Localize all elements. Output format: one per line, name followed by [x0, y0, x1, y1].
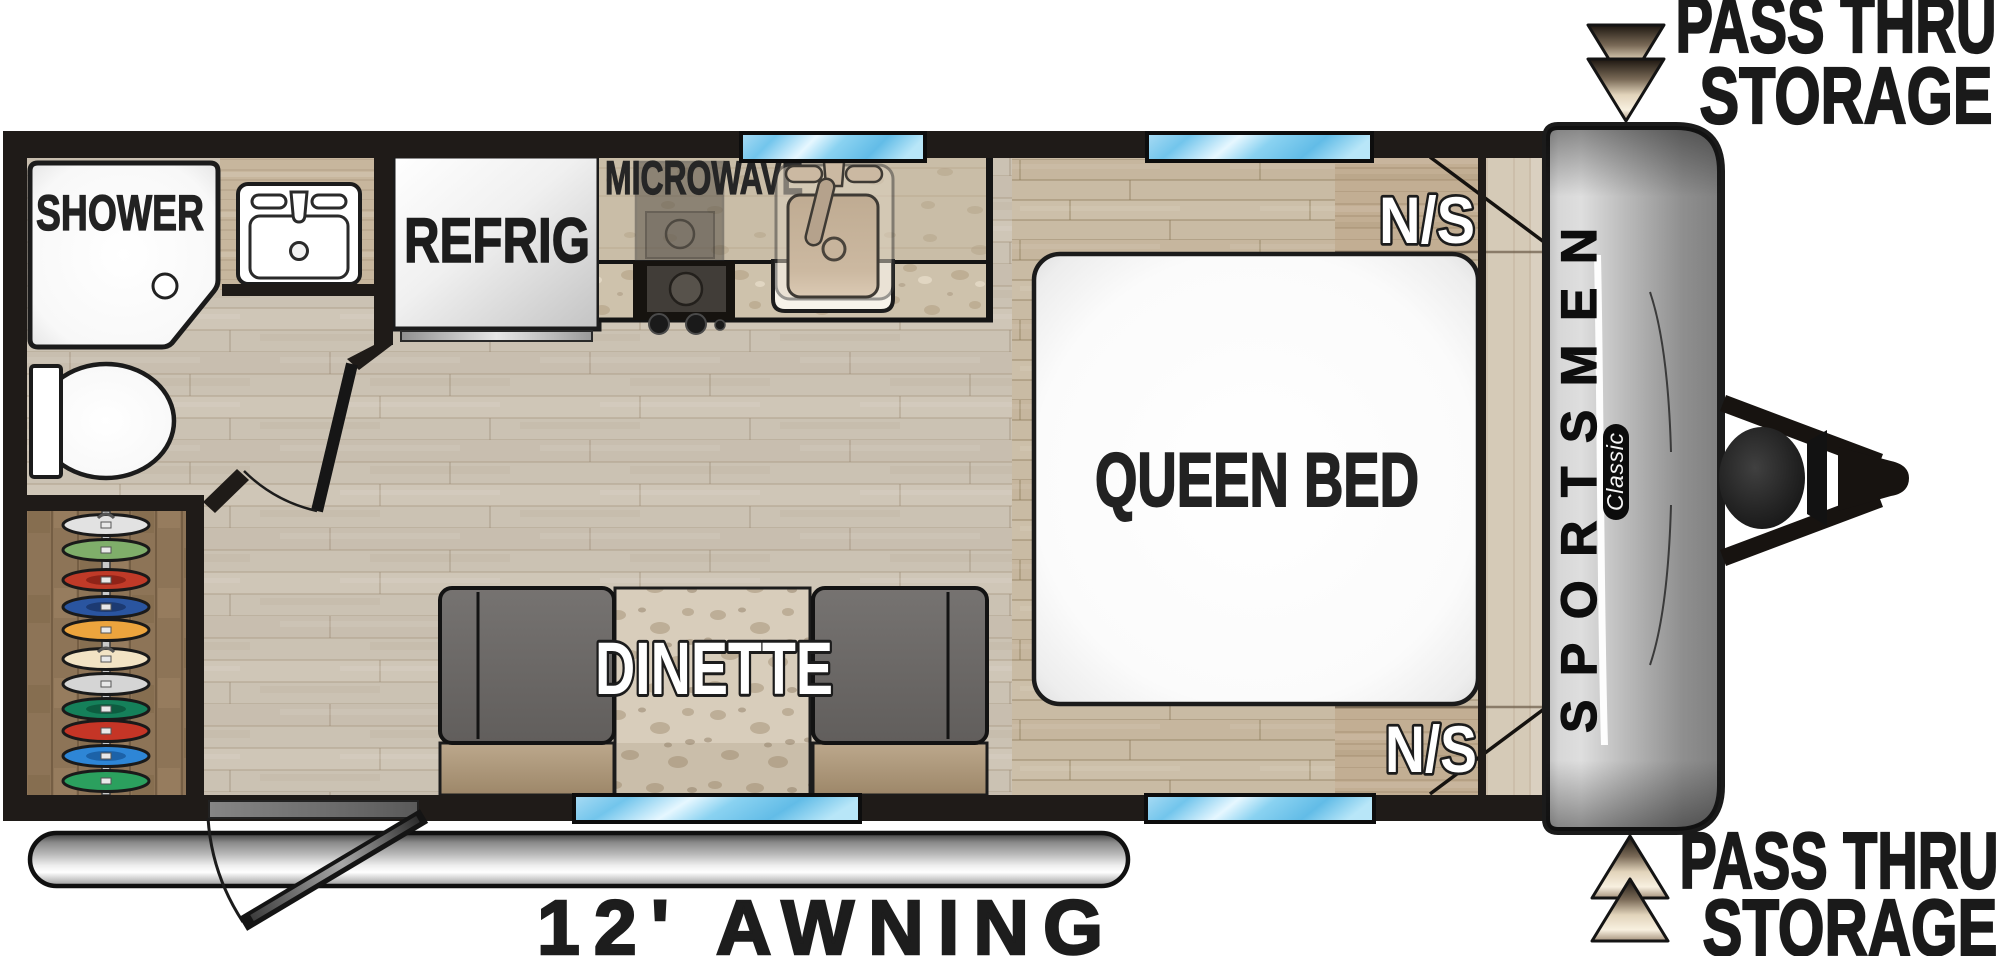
svg-text:Classic: Classic: [1602, 433, 1628, 512]
svg-text:QUEEN BED: QUEEN BED: [1095, 438, 1419, 523]
svg-text:STORAGE: STORAGE: [1703, 883, 1998, 956]
svg-text:STORAGE: STORAGE: [1700, 51, 1993, 140]
svg-text:DINETTE: DINETTE: [595, 627, 833, 710]
svg-text:N/S: N/S: [1379, 183, 1475, 257]
svg-text:SPORTSMEN: SPORTSMEN: [1551, 228, 1607, 733]
svg-text:N/S: N/S: [1385, 712, 1477, 786]
svg-text:12' AWNING: 12' AWNING: [537, 885, 1103, 956]
svg-text:REFRIG: REFRIG: [404, 206, 590, 276]
svg-text:SHOWER: SHOWER: [36, 185, 204, 241]
